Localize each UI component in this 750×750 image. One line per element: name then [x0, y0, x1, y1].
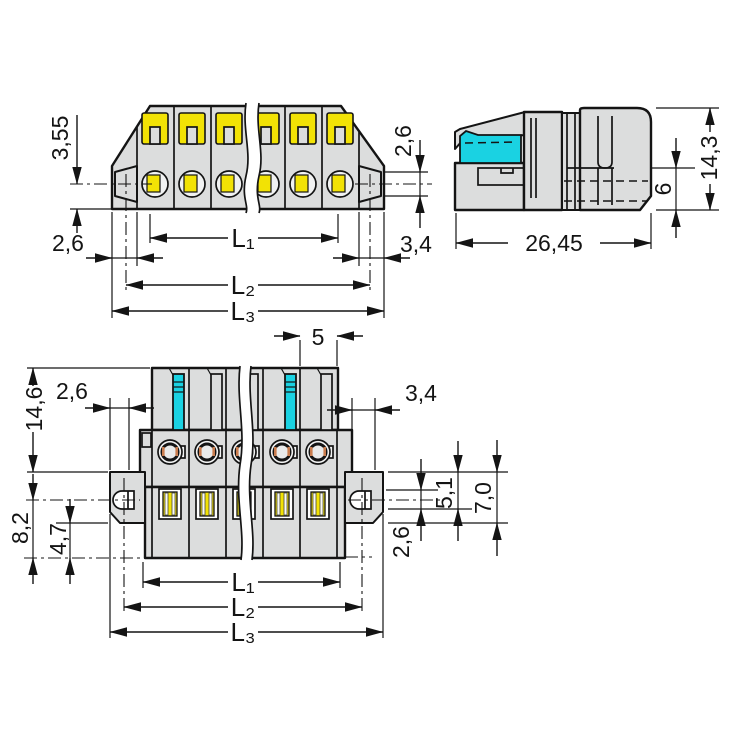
dim-label: 5,1 — [431, 477, 457, 509]
dim-3-55: 3,55 — [47, 115, 112, 233]
housing-mid-column — [524, 112, 562, 210]
dim-label: 4,7 — [45, 523, 71, 555]
dim-label: 2,6 — [52, 230, 84, 256]
dim-label: 5 — [312, 324, 325, 350]
connector-dimension-drawing: 3,55 2,6 3,4 2,6 — [0, 0, 750, 750]
dim-2-6-left: 2,6 — [52, 212, 163, 318]
dim-label: 26,45 — [525, 230, 583, 256]
housing-mid-rib — [562, 113, 580, 210]
wire-port — [216, 171, 242, 197]
wire-port — [290, 171, 316, 197]
dim-label: 2,6 — [388, 526, 414, 558]
clamp-opening — [327, 113, 353, 144]
clamp-opening — [179, 113, 205, 144]
profile-view: 26,45 14,3 6 — [455, 108, 722, 256]
clamp-opening — [216, 113, 242, 144]
dim-2-6-flange: 2,6 — [383, 125, 428, 228]
clamp-opening — [290, 113, 316, 144]
clamp-slot — [307, 489, 329, 519]
front-view: 5 2,6 3,4 14,6 — [7, 324, 508, 647]
dim-label: 3,55 — [47, 116, 73, 161]
dim-label: 2,6 — [56, 378, 88, 404]
dim-5-pitch: 5 — [274, 324, 363, 366]
dim-26-45: 26,45 — [456, 213, 651, 256]
dim-label: L₃ — [230, 296, 255, 326]
housing-rear-block — [580, 108, 651, 210]
release-lever — [460, 131, 521, 163]
clamp-slot — [159, 489, 181, 519]
clamp-opening — [142, 113, 168, 144]
clamp-slot — [271, 489, 293, 519]
dim-L1-side: L₁ — [150, 214, 338, 253]
mounting-flange-left — [110, 472, 145, 523]
clamp-slot — [196, 489, 218, 519]
mounting-flange-right — [345, 472, 383, 523]
dim-label: 14,3 — [696, 136, 722, 181]
wire-port — [327, 171, 353, 197]
dim-label: L₃ — [230, 617, 255, 647]
wire-port — [179, 171, 205, 197]
technical-drawing-page: 3,55 2,6 3,4 2,6 — [0, 0, 750, 750]
dim-3-4: 3,4 — [333, 212, 432, 318]
dim-8-2: 8,2 — [7, 474, 33, 584]
dim-6: 6 — [650, 138, 676, 238]
dim-label: 7,0 — [470, 482, 496, 514]
dim-label: 3,4 — [400, 231, 432, 257]
dim-label: 14,6 — [21, 387, 47, 432]
dim-label: 2,6 — [390, 125, 416, 157]
side-view-broken: 3,55 2,6 3,4 2,6 — [47, 103, 432, 326]
break-line — [239, 366, 253, 560]
dim-label: 8,2 — [7, 512, 33, 544]
dim-label: 6 — [650, 183, 676, 196]
dim-L3-side: L₃ — [112, 296, 384, 326]
dim-label: L₁ — [231, 223, 254, 253]
dim-label: 3,4 — [405, 380, 437, 406]
dim-4-7: 4,7 — [45, 499, 108, 584]
